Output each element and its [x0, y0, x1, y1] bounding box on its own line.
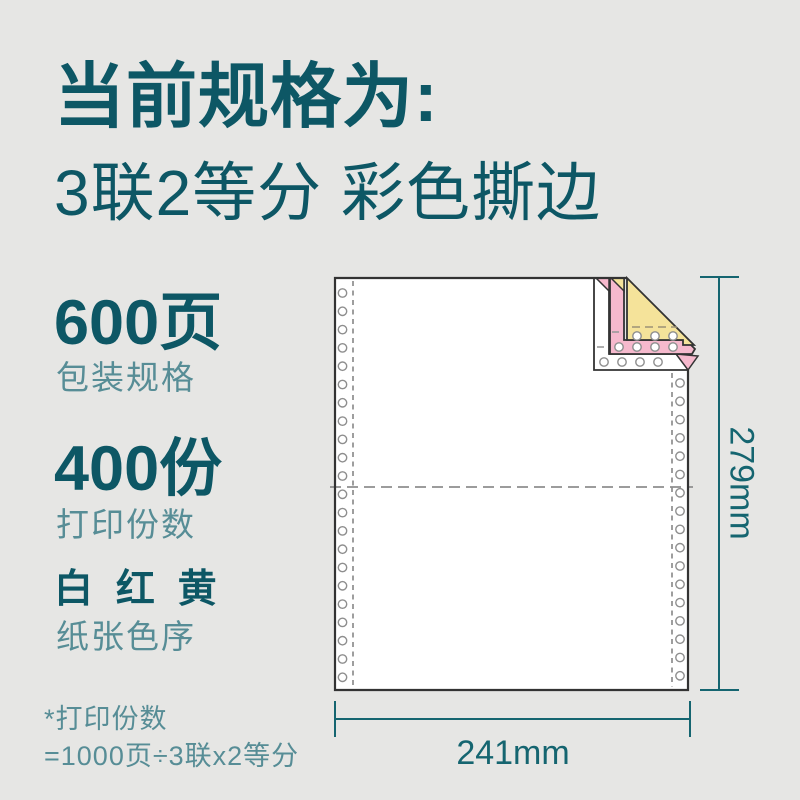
tractor-hole [676, 397, 684, 405]
tractor-hole [338, 563, 346, 571]
tractor-hole [338, 307, 346, 315]
tractor-hole [338, 380, 346, 388]
tractor-hole [654, 358, 662, 366]
tractor-hole [669, 332, 677, 340]
fold-corner [594, 278, 698, 370]
tractor-hole [676, 379, 684, 387]
tractor-hole [676, 598, 684, 606]
tractor-hole [651, 343, 659, 351]
tractor-hole [676, 562, 684, 570]
tractor-hole [338, 289, 346, 297]
width-dimension-line [335, 701, 690, 737]
tractor-hole [633, 332, 641, 340]
tractor-hole [338, 673, 346, 681]
tractor-hole [676, 470, 684, 478]
tractor-hole [338, 417, 346, 425]
height-dimension-label: 279mm [722, 426, 761, 539]
tractor-hole [676, 525, 684, 533]
tractor-hole [338, 508, 346, 516]
tractor-hole [338, 344, 346, 352]
tractor-hole [676, 672, 684, 680]
tractor-hole [338, 527, 346, 535]
tractor-hole [600, 358, 608, 366]
tractor-hole [338, 325, 346, 333]
tractor-hole [338, 490, 346, 498]
tractor-hole [338, 582, 346, 590]
tractor-hole [676, 507, 684, 515]
tractor-hole [676, 415, 684, 423]
tractor-hole [669, 343, 677, 351]
tractor-hole [338, 399, 346, 407]
tractor-hole [615, 343, 623, 351]
tractor-hole [338, 362, 346, 370]
tractor-hole [338, 454, 346, 462]
tractor-hole [651, 332, 659, 340]
width-dimension-label: 241mm [456, 734, 569, 773]
tractor-hole [338, 600, 346, 608]
tractor-hole [338, 435, 346, 443]
tractor-hole [676, 653, 684, 661]
tractor-hole [618, 358, 626, 366]
tractor-hole [676, 489, 684, 497]
tractor-hole [676, 635, 684, 643]
tractor-hole [338, 618, 346, 626]
tractor-hole [676, 544, 684, 552]
tractor-hole [338, 545, 346, 553]
tractor-hole [636, 358, 644, 366]
tractor-hole [676, 452, 684, 460]
tractor-hole [676, 434, 684, 442]
tractor-hole [676, 580, 684, 588]
tractor-hole [338, 655, 346, 663]
paper-diagram [0, 0, 800, 800]
tractor-hole [676, 617, 684, 625]
tractor-hole [633, 343, 641, 351]
tractor-hole [338, 472, 346, 480]
tractor-hole [338, 637, 346, 645]
